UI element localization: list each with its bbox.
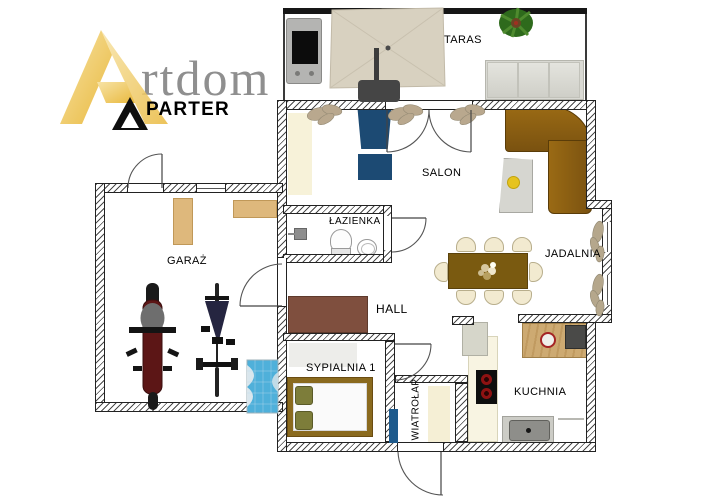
bench-cushion: [487, 62, 518, 98]
salon-rug: [288, 113, 312, 195]
hall-dresser: [288, 296, 368, 333]
island-bowl: [540, 332, 556, 348]
dining-chair: [529, 262, 543, 282]
room-label-wiatrolap: WIATROŁAP: [411, 375, 422, 445]
dining-chair: [456, 237, 476, 252]
room-label-kuchnia: KUCHNIA: [514, 386, 566, 398]
garage-window: [197, 183, 225, 193]
kitchen-island: [522, 323, 588, 358]
garage-left-wall: [95, 183, 105, 412]
bath-bottom-wall: [283, 254, 392, 263]
ottoman-navy: [358, 154, 392, 180]
radiator-blue: [389, 409, 398, 443]
house-left-wall: [277, 100, 287, 258]
kitchen-sink-unit: [502, 416, 554, 443]
vestibule-rug: [428, 386, 450, 442]
house-top-wall: [280, 100, 386, 110]
dining-chair: [434, 262, 448, 282]
room-label-garaz: GARAŻ: [167, 255, 207, 267]
terrace-right-wall: [585, 14, 587, 100]
drain-dot: [526, 428, 531, 433]
hob-icon: [476, 370, 497, 404]
grill-screen: [292, 31, 318, 64]
terrace-bench: [485, 60, 584, 100]
kitchen-left-wall: [455, 383, 468, 442]
garage-cabinet: [173, 198, 193, 245]
floor-title: PARTER: [146, 99, 230, 121]
fridge-cabinet: [462, 322, 488, 356]
table-bowl: [507, 176, 520, 189]
terrace-left-wall: [283, 14, 285, 100]
kitchen-top-wall: [518, 314, 612, 323]
bath-door-opening: [383, 216, 392, 250]
coffee-machine-icon: [565, 325, 586, 349]
parasol-icon: [330, 8, 445, 102]
dining-chair: [456, 290, 476, 305]
house-top-wall: [472, 100, 588, 110]
bench-cushion: [518, 62, 549, 98]
shower-pipe: [288, 233, 295, 235]
vestibule-top-wall: [395, 375, 468, 383]
grill-knob: [309, 71, 314, 76]
house-left-wall: [277, 306, 287, 452]
logo-text: rtdom: [141, 55, 270, 101]
shower-head-icon: [294, 228, 307, 240]
kitchen-top-stub: [452, 316, 474, 325]
house-right-wall-lower: [586, 322, 596, 450]
bicycle-icon: [196, 283, 238, 397]
dining-chair: [512, 290, 532, 305]
dining-chair: [484, 290, 504, 305]
house-bottom-wall: [443, 442, 596, 452]
garage-top-wall: [163, 183, 197, 193]
terrace-door-opening: [386, 100, 472, 110]
house-bottom-wall: [283, 442, 398, 452]
room-label-taras: TARAS: [444, 34, 482, 46]
bedroom-top-wall: [283, 333, 395, 341]
bath-top-wall: [283, 205, 392, 214]
room-label-hall: HALL: [376, 302, 408, 316]
grill-icon: [286, 18, 322, 84]
terrace-top-wall: [283, 8, 587, 14]
bench-cushion: [549, 62, 580, 98]
bed-pillow: [295, 411, 313, 430]
dining-window: [602, 222, 612, 252]
garage-top-wall: [225, 183, 283, 193]
room-label-salon: SALON: [422, 167, 461, 179]
garage-hall-door-opening: [277, 258, 287, 306]
dining-chair: [512, 237, 532, 252]
room-label-jadalnia: JADALNIA: [545, 248, 601, 260]
burner: [481, 374, 492, 385]
garage-bottom-wall: [95, 402, 283, 412]
counter-edge-marks: [558, 418, 584, 420]
floor-plan-page: rtdom PARTER: [0, 0, 710, 500]
house-right-wall: [586, 100, 596, 208]
bed-pillow: [295, 386, 313, 405]
dining-chair: [484, 237, 504, 252]
motorcycle-icon: [126, 283, 180, 410]
dining-table: [448, 253, 528, 289]
room-label-lazienka: ŁAZIENKA: [329, 216, 381, 227]
dining-window: [602, 275, 612, 305]
grill-knob: [295, 71, 300, 76]
burner: [481, 388, 492, 399]
room-label-sypialnia: SYPIALNIA 1: [306, 362, 376, 374]
garage-cabinet: [233, 200, 277, 218]
garage-door-opening: [128, 183, 163, 193]
